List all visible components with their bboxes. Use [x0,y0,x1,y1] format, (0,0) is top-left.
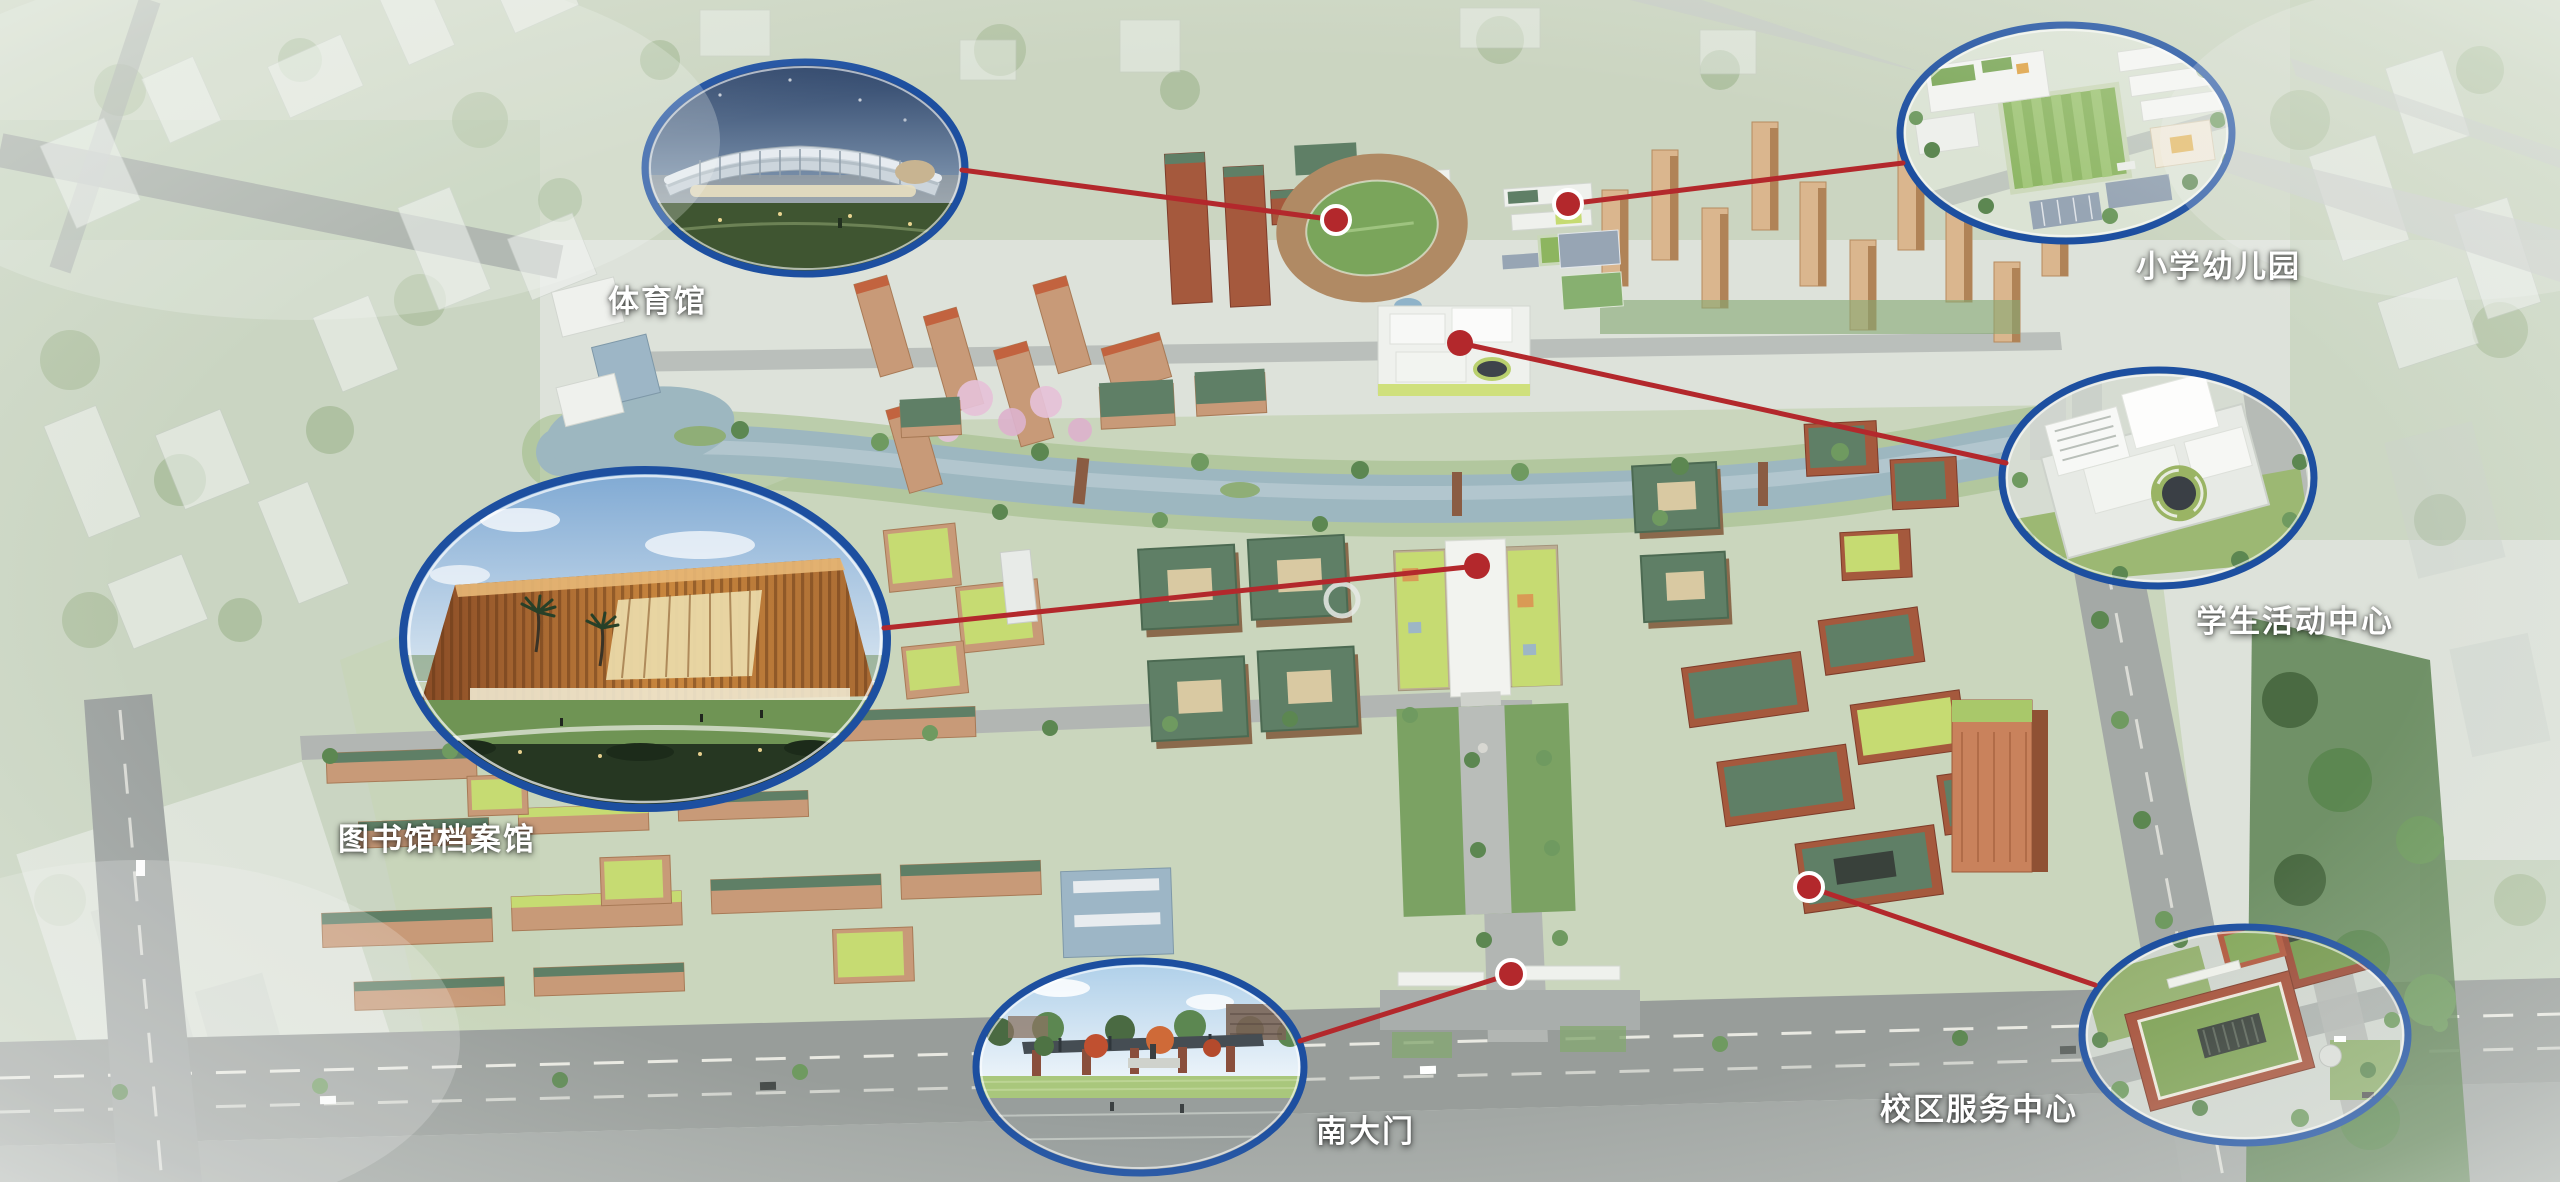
marker-south-gate[interactable] [1497,960,1525,988]
label-library-archives: 图书馆档案馆 [338,814,536,859]
campus-map-svg [0,0,2560,1182]
callout-library-archives[interactable] [403,470,887,810]
label-student-activity-center: 学生活动中心 [2196,596,2394,641]
marker-student-activity-center[interactable] [1447,330,1473,356]
southeast-tower [1952,700,2048,872]
marker-primary-school-kindergarten[interactable] [1554,190,1582,218]
label-south-gate: 南大门 [1316,1106,1415,1151]
marker-gymnasium[interactable] [1322,206,1350,234]
campus-aerial-map: 体育馆 小学幼儿园 学生活动中心 图书馆档案馆 南大门 校区服务中心 [0,0,2560,1182]
label-gymnasium: 体育馆 [608,276,707,321]
grand-lawn-axis [1396,703,1575,917]
marker-campus-service-center[interactable] [1795,873,1823,901]
label-campus-service-center: 校区服务中心 [1880,1084,2078,1129]
footbridge [1452,472,1462,516]
label-primary-school-kindergarten: 小学幼儿园 [2136,241,2301,286]
callout-south-gate[interactable] [976,961,1304,1174]
footbridge [1758,462,1768,506]
marker-library-archives[interactable] [1464,553,1490,579]
